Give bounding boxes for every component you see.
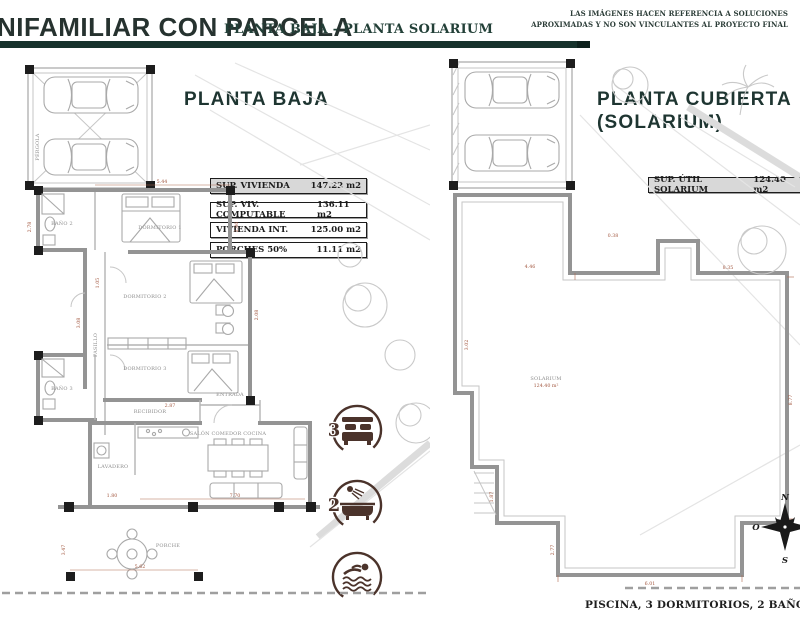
bedroom-count: 3 — [328, 420, 341, 441]
dim-label: 0.38 — [608, 233, 619, 239]
sofa — [294, 427, 307, 479]
dim-label: 2.06 — [234, 222, 240, 233]
bed-icon — [342, 417, 373, 445]
dim-label: 2.77 — [550, 545, 556, 556]
palm-tree-icon — [722, 65, 774, 115]
sofa — [210, 483, 282, 498]
tree-icon — [343, 283, 387, 327]
tree-icon — [338, 243, 362, 267]
disclaimer-line2: APROXIMADAS Y NO SON VINCULANTES AL PROY… — [531, 19, 788, 30]
pillar — [25, 65, 34, 74]
room-label-bano2: BAÑO 2 — [51, 219, 73, 227]
pillar — [306, 502, 316, 512]
dim-label: 7.70 — [230, 493, 241, 499]
room-label-lavadero: LAVADERO — [98, 464, 129, 470]
pillar — [34, 416, 43, 425]
bed — [188, 351, 238, 393]
dim-label: 4.46 — [525, 264, 536, 270]
planta-baja-drawing: PÉRGOLA — [0, 55, 430, 600]
dim-label: 5.62 — [135, 564, 146, 570]
car-icon — [465, 72, 559, 108]
room-label-dormitorio2: DORMITORIO 2 — [123, 294, 166, 300]
dim-label: 1.87 — [489, 492, 495, 503]
room-label-pasillo: PASILLO — [93, 333, 99, 357]
header-divider-bar — [0, 41, 577, 48]
dim-label: 1.80 — [107, 493, 118, 499]
solarium-outline — [455, 195, 787, 575]
dim-label: 3.08 — [76, 318, 82, 329]
bathroom-fixtures — [42, 194, 64, 245]
dim-label: 2.08 — [254, 310, 260, 321]
pillar — [226, 186, 235, 195]
bed — [190, 261, 242, 303]
pillar — [25, 181, 34, 190]
pool-badge — [324, 544, 391, 600]
footer-features-text: PISCINA, 3 DORMITORIOS, 2 BAÑOS — [585, 599, 800, 611]
house-walls — [34, 186, 318, 581]
disclaimer-text: LAS IMÁGENES HACEN REFERENCIA A SOLUCION… — [531, 8, 788, 30]
room-label-dormitorio1: DORMITORIO 1 — [138, 225, 181, 231]
compass-o: O — [752, 523, 760, 533]
pillar — [194, 572, 203, 581]
pillar — [566, 59, 575, 68]
planta-cubierta-drawing: SOLARIUM 124.40 m² 0.38 8.35 3.02 1.87 8… — [440, 55, 800, 600]
compass-rose: N S O — [752, 493, 800, 566]
bathroom-count: 2 — [328, 495, 341, 516]
bathroom-fixtures — [42, 359, 64, 409]
car-icon — [44, 139, 138, 175]
wardrobe — [108, 338, 186, 349]
swimmer-icon — [343, 564, 371, 591]
pillar — [34, 246, 43, 255]
dimension-annotations: 0.38 8.35 3.02 1.87 8.77 6.01 4.46 2.77 — [464, 233, 794, 587]
compass-s: S — [782, 556, 788, 566]
header-divider-bar-cap — [577, 41, 590, 48]
disclaimer-line1: LAS IMÁGENES HACEN REFERENCIA A SOLUCION… — [531, 8, 788, 19]
bed — [122, 194, 180, 242]
pillar — [146, 65, 155, 74]
dining-table — [208, 439, 268, 477]
chair — [223, 306, 234, 317]
floorplan-sheet: { "header": { "title": "NIFAMILIAR CON P… — [0, 0, 800, 640]
pillar — [66, 572, 75, 581]
room-label-bano3: BAÑO 3 — [51, 384, 73, 392]
pillar — [449, 181, 458, 190]
trees — [338, 243, 430, 443]
pillar — [246, 396, 255, 405]
pillar — [274, 502, 284, 512]
dim-label: 2.87 — [165, 403, 176, 409]
room-label-solarium: SOLARIUM — [530, 376, 561, 382]
dim-label: 5.44 — [157, 179, 168, 185]
carport — [449, 59, 575, 190]
dim-label: 3.02 — [464, 340, 470, 351]
dim-label: 8.77 — [788, 395, 794, 406]
porch-table — [107, 529, 157, 579]
pillar — [188, 502, 198, 512]
compass-n: N — [780, 493, 790, 503]
sheet-subtitle: PLANTA BAJA - PLANTA SOLARIUM — [224, 22, 493, 37]
pillar — [449, 59, 458, 68]
pillar — [64, 502, 74, 512]
dim-label: 2.78 — [27, 222, 33, 233]
dim-label: 1.05 — [95, 278, 101, 289]
car-icon — [465, 135, 559, 171]
pillar — [246, 248, 255, 257]
tree-icon — [385, 340, 415, 370]
feature-badges: 3 2 — [324, 397, 391, 600]
room-label-porche: PORCHE — [156, 543, 180, 549]
dim-label: 8.35 — [723, 265, 734, 271]
solarium-area-label: 124.40 m² — [534, 383, 559, 389]
dim-label: 6.01 — [645, 581, 656, 587]
room-label-dormitorio3: DORMITORIO 3 — [123, 366, 166, 372]
washer — [94, 443, 109, 458]
room-label-entrada: ENTRADA — [216, 392, 244, 398]
dim-label: 3.47 — [61, 545, 67, 556]
chair — [223, 324, 234, 335]
background-sketch-lines — [580, 85, 800, 535]
pillar — [566, 181, 575, 190]
room-label-salon: SALÓN COMEDOR COCINA — [190, 429, 266, 437]
room-label-recibidor: RECIBIDOR — [134, 409, 167, 415]
room-label-pergola: PÉRGOLA — [33, 133, 41, 160]
carport-pergola: PÉRGOLA — [25, 65, 155, 190]
bedrooms-badge: 3 — [324, 397, 391, 464]
car-icon — [44, 77, 138, 113]
